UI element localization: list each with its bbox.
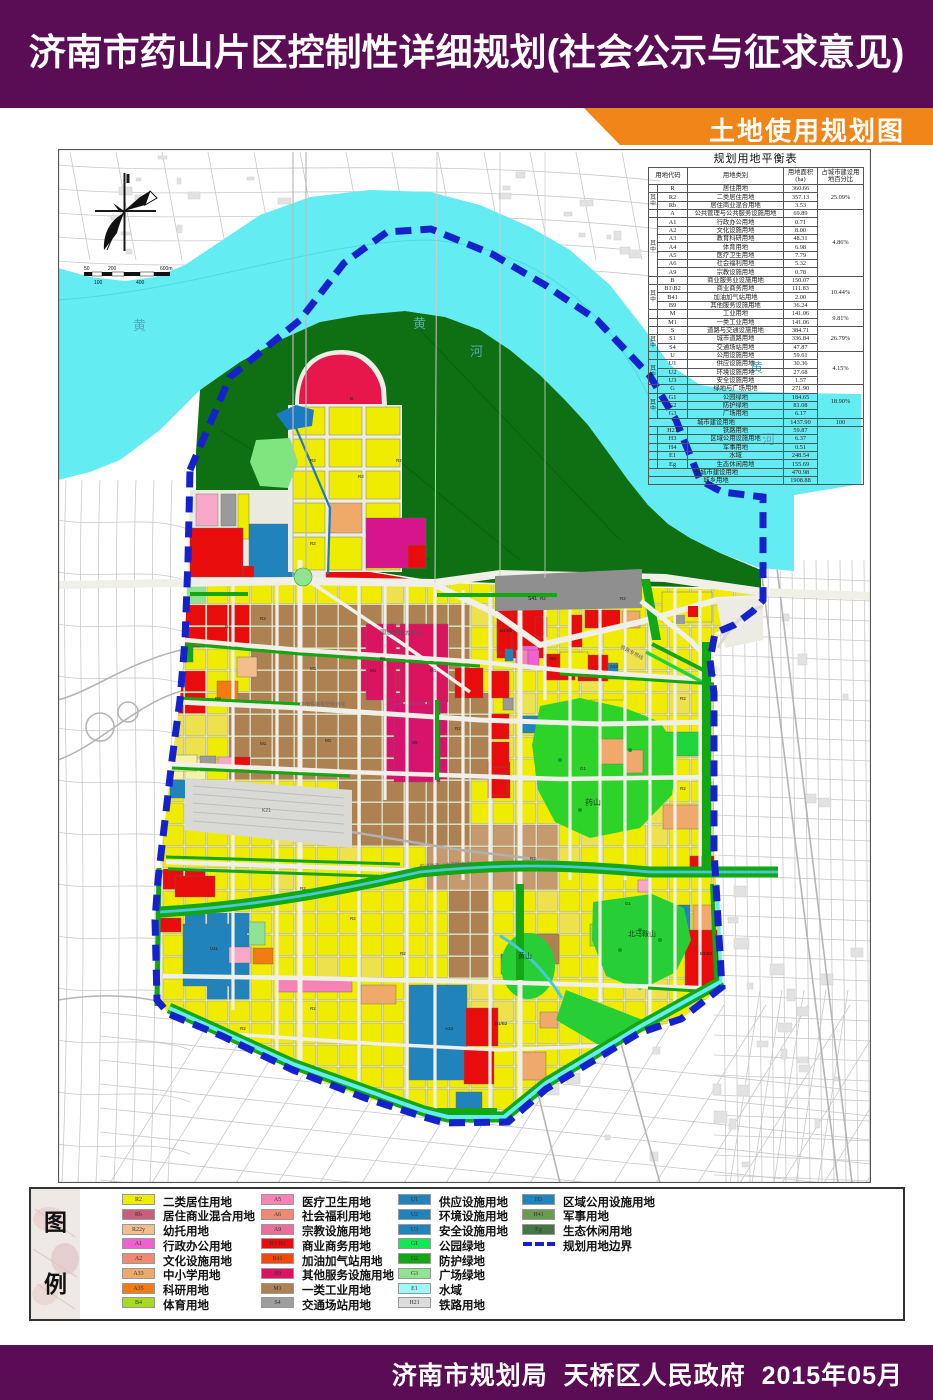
svg-text:药山: 药山 [585,797,601,807]
svg-text:G1: G1 [625,901,632,906]
svg-text:M1: M1 [430,668,437,673]
svg-text:50: 50 [84,266,90,272]
svg-text:R2: R2 [680,696,686,701]
svg-text:R2: R2 [680,786,686,791]
svg-text:黄山: 黄山 [518,951,532,960]
svg-text:北马鞍山: 北马鞍山 [628,929,656,938]
svg-text:R2: R2 [400,951,406,956]
svg-text:黄: 黄 [133,318,146,333]
svg-text:R2: R2 [550,656,556,661]
svg-text:R2: R2 [310,541,316,546]
svg-text:B9: B9 [412,740,418,745]
svg-text:B1/B2: B1/B2 [495,1021,508,1026]
svg-text:400: 400 [136,280,145,286]
svg-text:M1: M1 [370,668,377,673]
svg-text:G1: G1 [580,766,587,771]
svg-text:R2: R2 [358,474,364,479]
svg-text:R2: R2 [530,856,536,861]
svg-text:A33: A33 [610,664,619,669]
svg-text:U11: U11 [210,946,218,951]
svg-text:B: B [350,396,353,401]
svg-text:B9: B9 [380,656,386,661]
svg-text:R2: R2 [350,916,356,921]
svg-text:R2: R2 [240,1026,246,1031]
svg-text:R2: R2 [540,596,546,601]
svg-text:R2: R2 [620,596,626,601]
svg-text:B1/B2: B1/B2 [700,951,713,956]
svg-text:R2: R2 [310,1006,316,1011]
svg-text:R2: R2 [260,616,266,621]
svg-text:R2: R2 [455,726,461,731]
svg-text:R2: R2 [310,458,316,463]
svg-text:M1: M1 [310,666,317,671]
svg-text:M1: M1 [260,741,267,746]
svg-text:100: 100 [94,280,103,286]
svg-text:黄: 黄 [413,316,426,331]
svg-text:200: 200 [108,266,117,272]
svg-text:S41: S41 [528,596,537,602]
svg-text:R2: R2 [300,886,306,891]
svg-text:R2: R2 [225,624,231,629]
svg-text:济南铁路枢纽规划线: 济南铁路枢纽规划线 [300,701,345,708]
svg-text:A33: A33 [445,1026,454,1031]
svg-text:R2: R2 [215,696,221,701]
svg-text:600m: 600m [160,266,173,272]
svg-text:M1: M1 [325,738,332,743]
svg-text:B1/B2: B1/B2 [500,628,513,633]
svg-text:R2: R2 [396,458,402,463]
svg-text:K21: K21 [262,808,271,814]
svg-text:河: 河 [470,344,483,359]
